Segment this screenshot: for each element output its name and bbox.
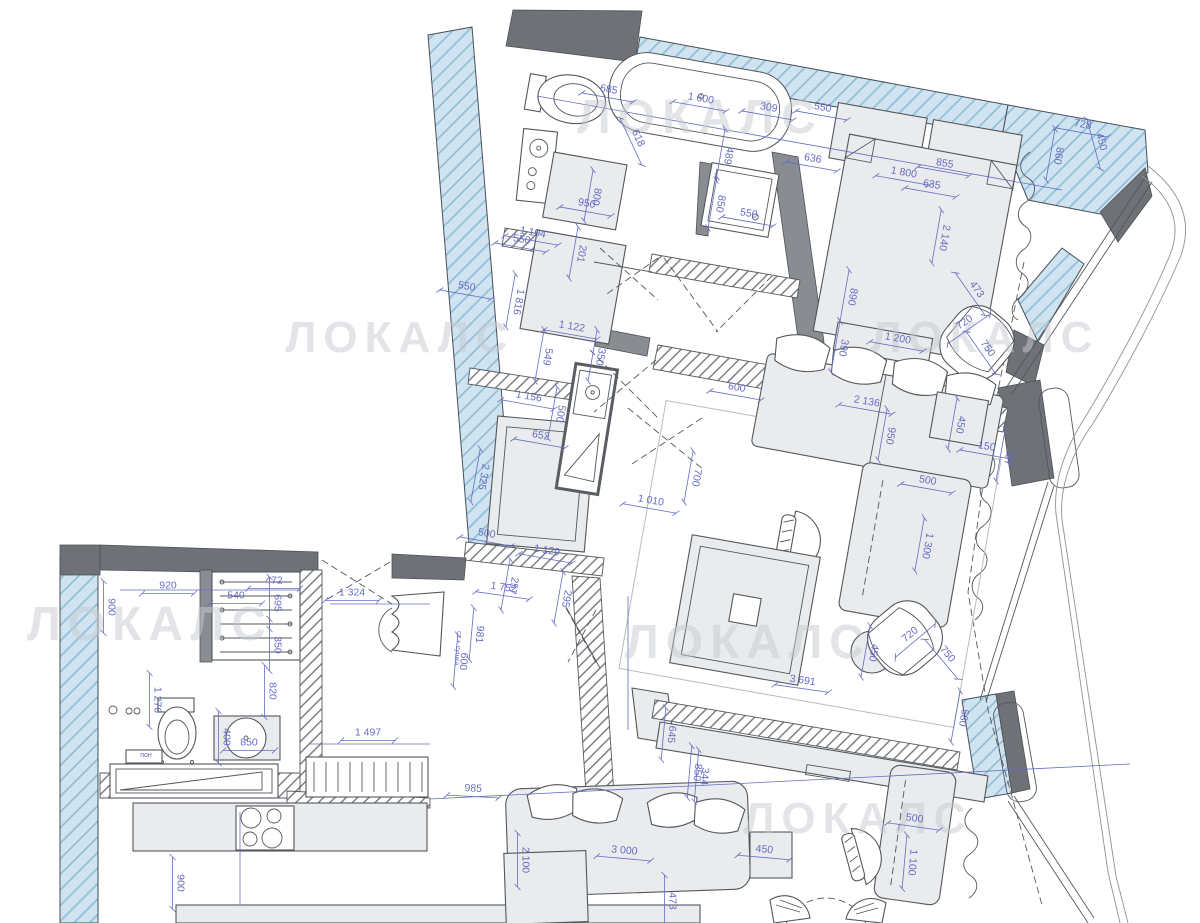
wall-hall-living — [572, 576, 614, 796]
kitchen-island-cut — [176, 905, 700, 923]
dimension-text: 350 — [593, 347, 608, 366]
door-living — [628, 408, 704, 470]
dining-set-cut — [770, 896, 886, 923]
floor-plan-svg: ЛОКАЛСЛОКАЛСЛОКАЛСЛОКАЛСЛОКАЛСЛОКАЛС 685… — [0, 0, 1200, 923]
bath2-fittings — [109, 706, 140, 714]
dimension-text: 920 — [159, 580, 177, 592]
dimension-label: 1 497 — [338, 727, 398, 744]
dimension-text: 1 010 — [637, 492, 665, 508]
dimension-text: 3 000 — [611, 843, 638, 857]
dimension-label: 1 324 — [322, 587, 382, 604]
dimension-text: 549 — [540, 347, 555, 366]
dimension-label: 1 010 — [619, 489, 681, 516]
dimension-label: 549 — [532, 326, 559, 386]
dimension-text: 295 — [559, 589, 574, 608]
dimension-text: 500 — [553, 404, 568, 423]
dimension-text: 900 — [106, 598, 118, 616]
watermark-text: ЛОКАЛС — [625, 616, 871, 669]
balcony-outline-outer — [1062, 166, 1186, 923]
exterior-wall-top-corner-block — [506, 10, 642, 62]
shower-tray-bath2 — [110, 764, 278, 798]
dimension-text: 985 — [464, 782, 482, 795]
console-table — [392, 592, 444, 656]
dimension-text: 700 — [689, 468, 704, 487]
dimension-text: 400 — [221, 728, 233, 746]
dimension-text: 350 — [272, 636, 284, 654]
lower-wing-corner-block — [60, 545, 100, 575]
pier-living-top — [998, 380, 1054, 486]
radiator-hall — [306, 757, 428, 797]
floor-plan-page: { "document": { "type": "apartment-floor… — [0, 0, 1200, 923]
dimension-text: 500 — [905, 811, 924, 825]
watermark-text: ЛОКАЛС — [286, 313, 515, 362]
dimension-text: 820 — [267, 682, 279, 700]
wall-lowerwing-top-dark2 — [392, 554, 466, 580]
annotation-text: пон — [140, 752, 152, 759]
kitchen-hob — [236, 806, 294, 850]
dimension-text: 197 — [1001, 447, 1016, 466]
dimension-text: 473 — [667, 892, 679, 910]
dimension-text: 3 691 — [789, 673, 817, 689]
dimension-label: 700 — [681, 447, 708, 507]
dimension-text: 695 — [272, 594, 284, 612]
window-living-glass-2 — [986, 486, 1054, 702]
dimension-text: 850 — [240, 737, 258, 749]
watermark-text: ЛОКАЛС — [27, 598, 273, 651]
balcony-outline-inner — [1056, 176, 1175, 923]
dimension-label: 820 — [262, 662, 279, 720]
window-living-glass-1 — [980, 482, 1048, 700]
dimension-text: 472 — [265, 575, 283, 587]
hall-furniture — [306, 592, 444, 797]
dimension-text: 450 — [755, 843, 774, 856]
dimension-text: 1 752 — [490, 580, 518, 596]
dimension-text: 900 — [175, 874, 187, 892]
window-bottom-glass-1 — [1014, 796, 1094, 918]
wall-bath1-bottom-right — [649, 254, 800, 298]
dimension-text: 850 — [691, 763, 704, 782]
dimension-text: 580 — [956, 708, 971, 727]
console-mirror — [379, 608, 392, 652]
dimension-text: 645 — [665, 725, 678, 744]
dimension-text: 2 100 — [520, 847, 532, 873]
dimension-text: 1 497 — [355, 727, 381, 739]
watermark-text: ЛОКАЛС — [744, 794, 973, 843]
window-bottom-glass-2 — [1008, 801, 1088, 923]
dimension-label: 920 — [139, 580, 197, 597]
dimension-text: 1 276 — [152, 687, 164, 713]
dimension-text: 600 — [727, 380, 746, 395]
dimension-text: 636 — [803, 151, 822, 166]
dimension-text: 981 — [473, 625, 486, 644]
dimension-text: 1 324 — [339, 587, 365, 599]
dimension-text: 1 100 — [905, 849, 919, 876]
dimension-label: 900 — [170, 854, 187, 912]
dimension-text: 489 — [721, 146, 736, 165]
dimension-text: 540 — [227, 590, 245, 602]
